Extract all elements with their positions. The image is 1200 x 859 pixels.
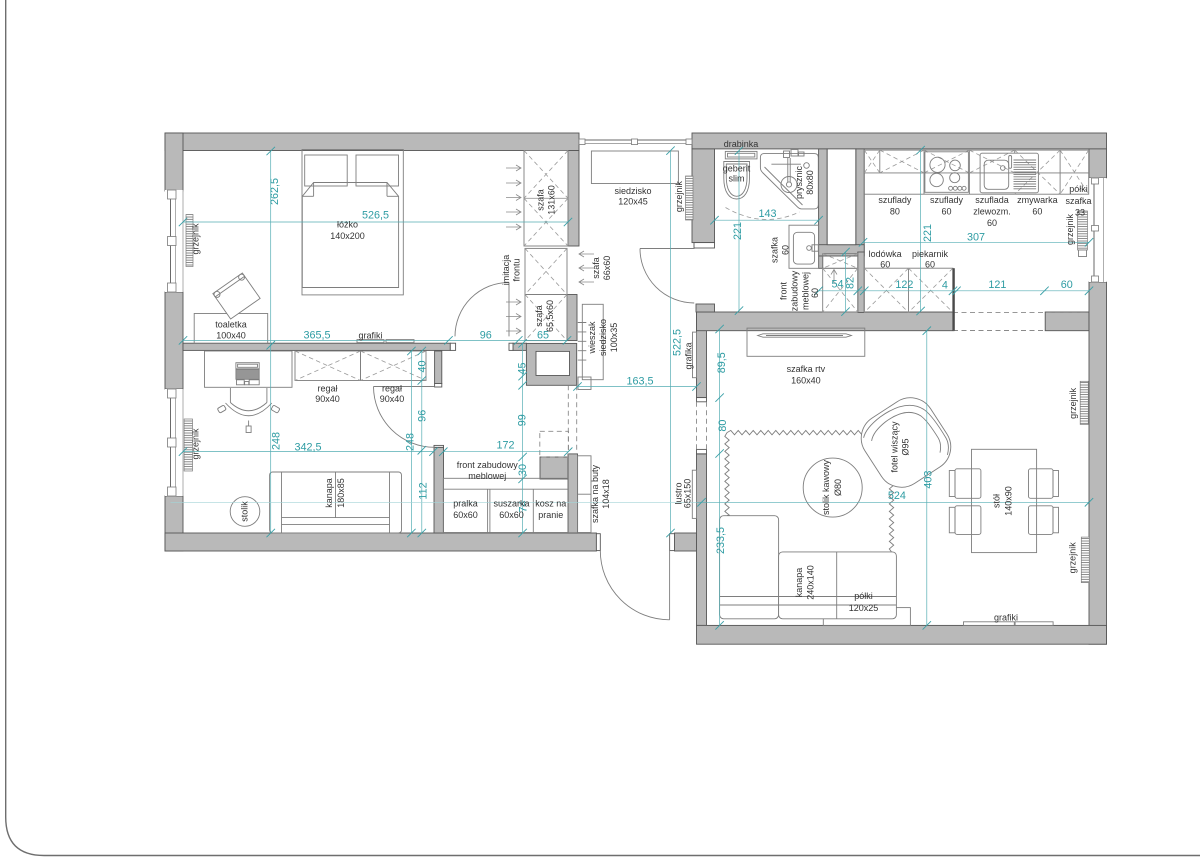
svg-text:143: 143 — [758, 208, 776, 220]
svg-text:160x40: 160x40 — [791, 376, 821, 386]
svg-text:163,5: 163,5 — [626, 375, 653, 387]
svg-text:kosz na: kosz na — [535, 499, 566, 509]
svg-text:szafka: szafka — [1065, 196, 1091, 206]
svg-text:221: 221 — [732, 222, 744, 240]
svg-text:80: 80 — [890, 207, 900, 217]
svg-text:szafka na buty: szafka na buty — [590, 464, 600, 523]
svg-text:120x25: 120x25 — [849, 603, 879, 613]
svg-text:zlewozm.: zlewozm. — [973, 207, 1011, 217]
svg-text:172: 172 — [496, 440, 514, 452]
svg-text:frontu: frontu — [512, 258, 522, 281]
svg-text:fotel wiszący: fotel wiszący — [890, 421, 900, 473]
svg-text:40: 40 — [417, 360, 429, 372]
svg-text:60: 60 — [1061, 279, 1073, 291]
svg-text:grzejnik: grzejnik — [1068, 387, 1078, 419]
svg-text:półki: półki — [1069, 184, 1088, 194]
svg-text:kanapa: kanapa — [324, 478, 334, 508]
svg-text:stół: stół — [992, 494, 1002, 508]
svg-text:80: 80 — [717, 420, 729, 432]
svg-text:zabudowy: zabudowy — [790, 270, 800, 311]
svg-text:stolik kawowy: stolik kawowy — [821, 459, 831, 515]
svg-text:112: 112 — [418, 482, 430, 499]
svg-text:4: 4 — [942, 279, 948, 291]
svg-text:522,5: 522,5 — [672, 329, 684, 356]
svg-text:toaletka: toaletka — [215, 320, 247, 330]
svg-text:front: front — [779, 281, 789, 300]
svg-text:248: 248 — [405, 433, 417, 451]
svg-text:grafiki: grafiki — [358, 330, 382, 340]
svg-text:60: 60 — [925, 260, 935, 270]
svg-text:30: 30 — [517, 464, 529, 476]
svg-text:96: 96 — [480, 330, 492, 342]
svg-text:65x150: 65x150 — [683, 479, 693, 509]
svg-text:grzejnik: grzejnik — [191, 428, 201, 460]
svg-text:307: 307 — [967, 231, 985, 243]
svg-text:526,5: 526,5 — [362, 210, 389, 222]
svg-text:szuflady: szuflady — [930, 195, 964, 205]
svg-text:lodówka: lodówka — [869, 249, 902, 259]
svg-text:100x40: 100x40 — [216, 330, 246, 340]
svg-text:drabinka: drabinka — [724, 139, 759, 149]
svg-text:342,5: 342,5 — [294, 441, 321, 453]
svg-text:slim: slim — [729, 174, 745, 184]
svg-text:szafka rtv: szafka rtv — [787, 364, 826, 374]
svg-text:siedzisko: siedzisko — [614, 186, 651, 196]
svg-text:szafa: szafa — [534, 305, 544, 327]
svg-text:54: 54 — [831, 278, 843, 290]
svg-text:grzejnik: grzejnik — [191, 223, 201, 255]
svg-text:grafiki: grafiki — [994, 613, 1018, 623]
svg-text:65,5x60: 65,5x60 — [545, 300, 555, 332]
svg-text:233,5: 233,5 — [715, 527, 727, 554]
svg-text:180x85: 180x85 — [336, 478, 346, 508]
svg-text:66x60: 66x60 — [602, 256, 612, 281]
svg-text:221: 221 — [922, 224, 934, 242]
svg-text:szafka: szafka — [770, 237, 780, 263]
svg-text:90x40: 90x40 — [315, 394, 340, 404]
svg-text:140x90: 140x90 — [1004, 486, 1014, 516]
svg-text:piekarnik: piekarnik — [912, 249, 949, 259]
svg-text:60: 60 — [1032, 207, 1042, 217]
svg-text:suszarka: suszarka — [493, 499, 529, 509]
svg-text:524: 524 — [888, 490, 906, 502]
svg-text:wieszak: wieszak — [587, 321, 597, 355]
svg-text:60x60: 60x60 — [499, 510, 524, 520]
svg-text:60: 60 — [810, 288, 820, 298]
svg-text:stolik: stolik — [240, 501, 250, 522]
svg-text:szafa: szafa — [536, 189, 546, 211]
svg-text:403: 403 — [923, 471, 935, 489]
svg-text:80x80: 80x80 — [805, 170, 815, 195]
svg-text:łóżko: łóżko — [337, 220, 358, 230]
svg-text:imitacja: imitacja — [501, 255, 511, 286]
svg-text:front zabudowy: front zabudowy — [457, 460, 519, 470]
svg-text:248: 248 — [271, 432, 283, 450]
svg-text:100x35: 100x35 — [609, 323, 619, 353]
svg-text:82: 82 — [845, 277, 857, 289]
svg-text:240x140: 240x140 — [806, 565, 816, 600]
svg-text:60: 60 — [880, 260, 890, 270]
svg-text:60: 60 — [987, 218, 997, 228]
svg-text:pralka: pralka — [453, 499, 478, 509]
svg-text:122: 122 — [895, 279, 913, 291]
svg-text:Ø80: Ø80 — [833, 479, 843, 496]
svg-text:131x60: 131x60 — [547, 185, 557, 215]
svg-text:90x40: 90x40 — [380, 394, 405, 404]
svg-text:grzejnik: grzejnik — [1065, 213, 1075, 245]
svg-text:prysznic: prysznic — [794, 166, 804, 200]
svg-text:262,5: 262,5 — [269, 178, 281, 205]
svg-text:89,5: 89,5 — [716, 352, 728, 373]
svg-text:meblowej: meblowej — [468, 471, 506, 481]
svg-text:60: 60 — [941, 207, 951, 217]
svg-text:szuflady: szuflady — [878, 195, 912, 205]
svg-text:regał: regał — [382, 384, 402, 394]
svg-text:szuflada: szuflada — [975, 195, 1009, 205]
svg-text:szafa: szafa — [591, 257, 601, 279]
svg-text:120x45: 120x45 — [618, 197, 648, 207]
svg-text:60x60: 60x60 — [453, 510, 478, 520]
svg-text:33: 33 — [1075, 208, 1085, 218]
svg-text:365,5: 365,5 — [303, 330, 330, 342]
svg-text:pranie: pranie — [538, 510, 563, 520]
svg-text:104x18: 104x18 — [601, 479, 611, 509]
svg-text:99: 99 — [517, 414, 529, 426]
svg-text:60: 60 — [781, 245, 791, 255]
svg-text:meblowej: meblowej — [801, 272, 811, 310]
svg-text:96: 96 — [417, 410, 429, 422]
svg-text:kanapa: kanapa — [794, 568, 804, 598]
svg-text:regał: regał — [317, 384, 337, 394]
svg-text:grzejnik: grzejnik — [1068, 542, 1078, 574]
svg-text:zmywarka: zmywarka — [1017, 195, 1058, 205]
svg-text:121: 121 — [988, 279, 1006, 291]
svg-text:geberit: geberit — [723, 164, 751, 174]
svg-text:Ø95: Ø95 — [901, 438, 911, 455]
svg-text:45: 45 — [517, 362, 529, 374]
svg-text:140x200: 140x200 — [330, 231, 365, 241]
svg-text:grafika: grafika — [684, 342, 694, 369]
svg-text:siedzisko: siedzisko — [598, 319, 608, 356]
svg-text:półki: półki — [854, 591, 873, 601]
svg-text:grzejnik: grzejnik — [674, 181, 684, 213]
